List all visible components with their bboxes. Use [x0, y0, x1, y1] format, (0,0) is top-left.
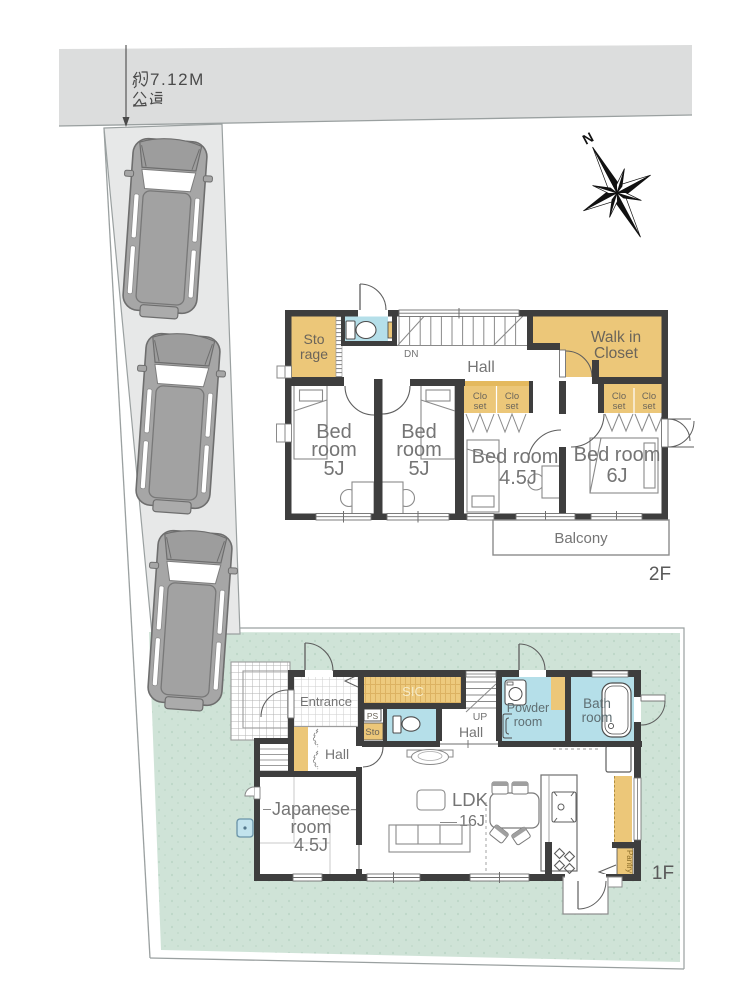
svg-text:Entrance: Entrance: [300, 694, 352, 709]
svg-text:1F: 1F: [652, 863, 674, 884]
svg-text:LDK: LDK: [452, 789, 489, 810]
svg-text:Hall: Hall: [459, 724, 483, 740]
svg-text:set: set: [613, 401, 626, 412]
svg-text:Balcony: Balcony: [554, 530, 608, 547]
svg-text:Hall: Hall: [325, 746, 349, 762]
svg-text:Bed room: Bed room: [574, 444, 661, 466]
svg-text:5J: 5J: [323, 458, 344, 480]
svg-text:16J: 16J: [459, 813, 485, 830]
svg-text:room: room: [582, 710, 613, 725]
svg-text:UP: UP: [473, 711, 488, 723]
svg-text:5J: 5J: [408, 458, 429, 480]
svg-text:set: set: [474, 401, 487, 412]
svg-text:set: set: [643, 401, 656, 412]
svg-text:room: room: [290, 817, 331, 837]
svg-text:4.5J: 4.5J: [294, 835, 328, 855]
svg-text:Bed room: Bed room: [472, 446, 559, 468]
svg-text:2F: 2F: [649, 564, 671, 585]
svg-text:Bath: Bath: [583, 696, 611, 711]
svg-text:SIC: SIC: [402, 684, 424, 699]
svg-text:set: set: [506, 401, 519, 412]
svg-text:Powder: Powder: [507, 701, 549, 715]
svg-text:Hall: Hall: [467, 359, 495, 376]
svg-text:4.5J: 4.5J: [499, 467, 537, 489]
svg-text:rage: rage: [300, 346, 328, 362]
svg-text:DN: DN: [404, 349, 418, 360]
svg-text:Sto: Sto: [365, 727, 379, 738]
svg-text:6J: 6J: [606, 465, 627, 487]
svg-text:Sto: Sto: [303, 331, 324, 347]
svg-text:room: room: [514, 715, 542, 729]
svg-text:Walk in: Walk in: [591, 329, 641, 346]
svg-text:Japanese: Japanese: [272, 799, 350, 819]
svg-text:Closet: Closet: [594, 345, 639, 362]
svg-text:7.12M: 7.12M: [150, 70, 205, 89]
svg-text:Pantry: Pantry: [625, 850, 634, 873]
svg-text:PS: PS: [367, 711, 379, 721]
